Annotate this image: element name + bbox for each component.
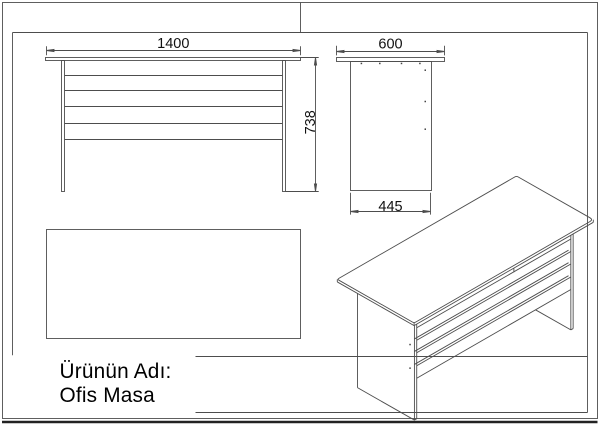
svg-text:1400: 1400 — [157, 36, 189, 52]
svg-text:600: 600 — [378, 37, 402, 53]
svg-text:738: 738 — [303, 110, 319, 134]
svg-text:445: 445 — [378, 199, 402, 215]
